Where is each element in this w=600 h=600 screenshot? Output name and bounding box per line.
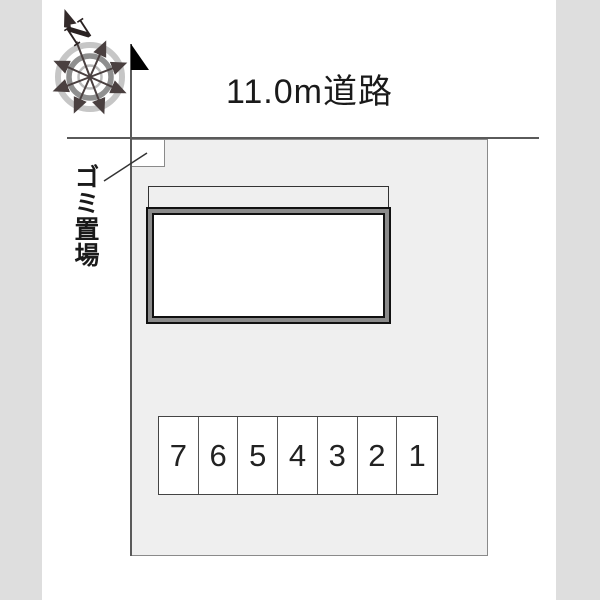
site-plan: 11.0m道路 7 6 5 4 3 2 1 ゴミ置場 — [0, 0, 600, 600]
north-arrow-icon — [64, 9, 77, 29]
parking-space-number: 5 — [249, 438, 266, 474]
parking-space-number: 6 — [209, 438, 226, 474]
parking-space: 3 — [318, 417, 358, 494]
parking-space: 1 — [397, 417, 437, 494]
compass-spokes — [58, 42, 121, 109]
road-label: 11.0m道路 — [226, 64, 393, 113]
parking-space-number: 2 — [368, 438, 385, 474]
compass-ring-middle — [69, 56, 111, 98]
parking-space-number: 3 — [329, 438, 346, 474]
parking-space-number: 1 — [409, 438, 426, 474]
building-interior — [152, 213, 385, 318]
right-margin-strip — [556, 0, 600, 600]
parking-lot: 7 6 5 4 3 2 1 — [158, 416, 438, 495]
compass-ring-inner — [79, 66, 102, 89]
flag-marker-icon — [131, 44, 149, 70]
left-margin-strip — [0, 0, 42, 600]
parking-space-number: 4 — [289, 438, 306, 474]
parking-space-number: 7 — [170, 438, 187, 474]
parking-space: 5 — [238, 417, 278, 494]
road-edge-line — [67, 137, 539, 139]
parking-space: 6 — [199, 417, 239, 494]
building-footprint — [146, 207, 391, 324]
garbage-area-notch — [131, 140, 165, 167]
parking-space: 4 — [278, 417, 318, 494]
compass-rose-icon: N — [58, 9, 122, 109]
garbage-area-label: ゴミ置場 — [67, 164, 103, 274]
parking-space: 2 — [358, 417, 398, 494]
west-boundary-line — [130, 44, 132, 556]
compass-north-label: N — [61, 13, 99, 52]
parking-space: 7 — [159, 417, 199, 494]
compass-ring-outer — [58, 45, 122, 109]
